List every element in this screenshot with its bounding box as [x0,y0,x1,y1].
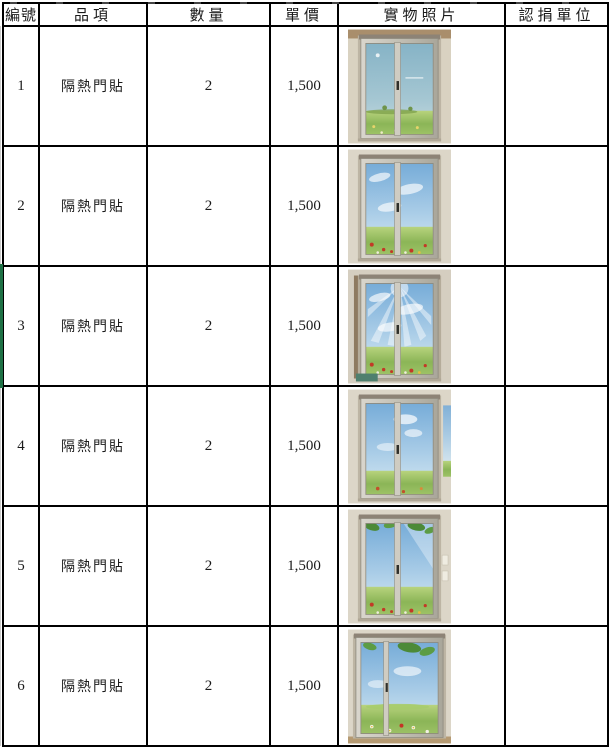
table-row: 5 隔熱門貼 2 1,500 [3,506,608,626]
header-number: 編號 [3,3,39,26]
item-photo-door-sticker [348,149,451,264]
cell-donor-unit [505,626,608,746]
cell-item: 隔熱門貼 [39,506,147,626]
cell-unit-price: 1,500 [270,506,338,626]
cell-donor-unit [505,26,608,146]
cell-quantity: 2 [147,26,270,146]
scan-artifact-top [10,2,595,4]
header-unit-price: 單價 [270,3,338,26]
cell-photo [338,386,505,506]
cell-unit-price: 1,500 [270,386,338,506]
cell-quantity: 2 [147,266,270,386]
cell-number: 4 [3,386,39,506]
cell-item: 隔熱門貼 [39,626,147,746]
item-photo-door-sticker [348,629,451,744]
item-photo-door-sticker [348,269,451,384]
table-row: 3 隔熱門貼 2 1,500 [3,266,608,386]
document-page: 編號 品項 數量 單價 實物照片 認捐單位 1 隔熱門貼 2 1,500 [0,2,611,748]
cell-quantity: 2 [147,146,270,266]
table-row: 6 隔熱門貼 2 1,500 [3,626,608,746]
item-photo-door-sticker [348,29,451,144]
table-row: 2 隔熱門貼 2 1,500 [3,146,608,266]
donation-items-table: 編號 品項 數量 單價 實物照片 認捐單位 1 隔熱門貼 2 1,500 [2,2,609,747]
table-header: 編號 品項 數量 單價 實物照片 認捐單位 [3,3,608,26]
cell-unit-price: 1,500 [270,626,338,746]
cell-item: 隔熱門貼 [39,146,147,266]
cell-item: 隔熱門貼 [39,386,147,506]
cell-donor-unit [505,506,608,626]
table-row: 4 隔熱門貼 2 1,500 [3,386,608,506]
cell-number: 3 [3,266,39,386]
cell-quantity: 2 [147,506,270,626]
header-item: 品項 [39,3,147,26]
cell-donor-unit [505,386,608,506]
cell-quantity: 2 [147,626,270,746]
cell-number: 1 [3,26,39,146]
cell-donor-unit [505,146,608,266]
cell-photo [338,26,505,146]
cell-quantity: 2 [147,386,270,506]
header-photo: 實物照片 [338,3,505,26]
cell-unit-price: 1,500 [270,146,338,266]
cell-photo [338,506,505,626]
item-photo-door-sticker [348,509,451,624]
cell-item: 隔熱門貼 [39,26,147,146]
header-donor-unit: 認捐單位 [505,3,608,26]
table-row: 1 隔熱門貼 2 1,500 [3,26,608,146]
header-quantity: 數量 [147,3,270,26]
cell-number: 5 [3,506,39,626]
cell-photo [338,626,505,746]
selection-marker-row-3 [0,264,3,388]
cell-number: 6 [3,626,39,746]
cell-unit-price: 1,500 [270,26,338,146]
cell-item: 隔熱門貼 [39,266,147,386]
cell-photo [338,266,505,386]
cell-number: 2 [3,146,39,266]
cell-donor-unit [505,266,608,386]
cell-unit-price: 1,500 [270,266,338,386]
cell-photo [338,146,505,266]
item-photo-door-sticker [348,389,451,504]
header-row: 編號 品項 數量 單價 實物照片 認捐單位 [3,3,608,26]
